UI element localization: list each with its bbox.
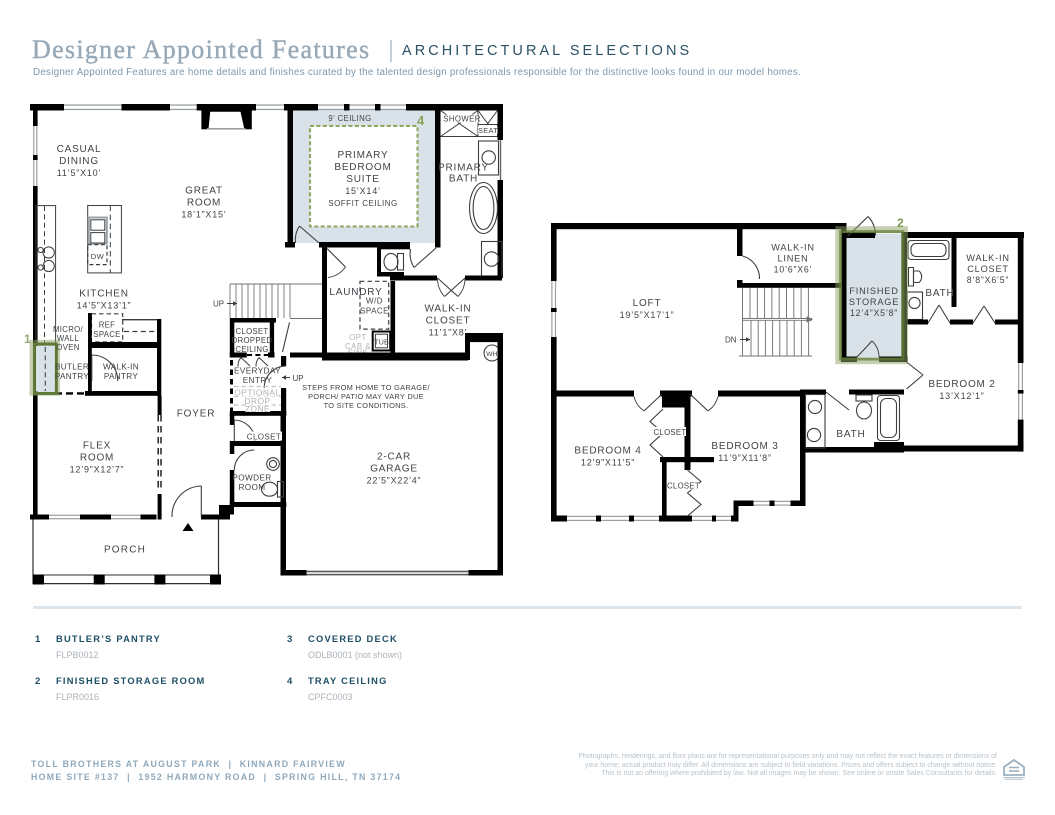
svg-text:ENTRY: ENTRY — [243, 376, 273, 385]
svg-text:2: 2 — [897, 216, 904, 230]
svg-text:11’5”X10’: 11’5”X10’ — [57, 168, 102, 178]
svg-text:FINISHED: FINISHED — [849, 286, 898, 296]
svg-text:OVEN: OVEN — [56, 343, 79, 352]
svg-text:STEPS FROM HOME TO GARAGE/: STEPS FROM HOME TO GARAGE/ — [302, 383, 430, 392]
svg-text:CASUAL: CASUAL — [57, 144, 102, 155]
svg-text:DN: DN — [725, 336, 737, 345]
svg-text:DINING: DINING — [59, 156, 99, 167]
svg-text:SHOWER: SHOWER — [443, 115, 481, 124]
svg-text:15’X14’: 15’X14’ — [345, 186, 381, 196]
svg-text:PORCH/ PATIO MAY VARY DUE: PORCH/ PATIO MAY VARY DUE — [308, 392, 424, 401]
svg-text:CLOSET: CLOSET — [236, 327, 269, 336]
svg-text:10’6”X6’: 10’6”X6’ — [774, 265, 813, 275]
svg-text:TUB: TUB — [374, 338, 389, 347]
svg-text:LINEN: LINEN — [777, 254, 808, 264]
svg-text:BEDROOM 3: BEDROOM 3 — [711, 441, 778, 452]
svg-text:WALK-IN: WALK-IN — [103, 363, 139, 372]
svg-text:CLOSET: CLOSET — [654, 428, 687, 437]
svg-text:BEDROOM 2: BEDROOM 2 — [928, 379, 995, 390]
svg-text:GREAT: GREAT — [185, 186, 223, 197]
svg-text:ROOM: ROOM — [80, 453, 114, 464]
svg-text:WALK-IN: WALK-IN — [425, 304, 472, 315]
svg-text:TO SITE CONDITIONS.: TO SITE CONDITIONS. — [324, 401, 409, 410]
svg-text:14’5”X13’1”: 14’5”X13’1” — [77, 301, 132, 311]
svg-text:12’9”X12’7”: 12’9”X12’7” — [70, 465, 125, 475]
svg-text:4: 4 — [417, 113, 425, 128]
svg-text:11’9”X11’8”: 11’9”X11’8” — [718, 453, 772, 463]
svg-text:SPACE: SPACE — [93, 330, 120, 339]
svg-text:MICRO/: MICRO/ — [53, 325, 83, 334]
svg-text:FLEX: FLEX — [83, 441, 111, 452]
svg-text:SEAT: SEAT — [478, 126, 498, 135]
svg-text:EVERYDAY: EVERYDAY — [234, 367, 281, 376]
svg-text:22’5”X22’4”: 22’5”X22’4” — [367, 476, 422, 486]
svg-text:CLOSET: CLOSET — [247, 433, 281, 442]
svg-text:11’1”X8’: 11’1”X8’ — [429, 328, 468, 338]
svg-text:BUTLER: BUTLER — [55, 363, 89, 372]
svg-text:BATH: BATH — [925, 288, 954, 299]
svg-text:KITCHEN: KITCHEN — [79, 289, 129, 300]
svg-text:UP: UP — [293, 374, 304, 383]
svg-text:GARAGE: GARAGE — [370, 464, 418, 475]
svg-text:LAUNDRY: LAUNDRY — [329, 287, 382, 298]
svg-text:19’5”X17’1”: 19’5”X17’1” — [620, 310, 675, 320]
svg-text:STORAGE: STORAGE — [849, 297, 899, 307]
svg-text:PANTRY: PANTRY — [104, 372, 138, 381]
svg-text:BEDROOM: BEDROOM — [334, 162, 391, 173]
svg-text:SPACE: SPACE — [360, 307, 389, 316]
svg-text:PRIMARY: PRIMARY — [338, 150, 389, 161]
svg-text:CLOSET: CLOSET — [667, 481, 700, 490]
svg-text:OPT: OPT — [349, 333, 367, 342]
svg-text:2-CAR: 2-CAR — [377, 452, 411, 463]
svg-text:PRIMARY: PRIMARY — [438, 163, 489, 174]
svg-text:FOYER: FOYER — [177, 409, 215, 420]
svg-text:ROOM: ROOM — [187, 198, 221, 209]
svg-text:DW: DW — [91, 252, 105, 261]
svg-text:LOFT: LOFT — [633, 298, 662, 309]
svg-text:18’1”X15’: 18’1”X15’ — [181, 210, 226, 220]
svg-text:CLOSET: CLOSET — [426, 316, 471, 327]
svg-text:CLOSET: CLOSET — [967, 264, 1009, 274]
svg-text:SUITE: SUITE — [346, 174, 379, 185]
svg-text:PORCH: PORCH — [104, 545, 146, 556]
svg-text:WALL: WALL — [57, 334, 80, 343]
svg-text:SOFFIT CEILING: SOFFIT CEILING — [328, 199, 398, 208]
svg-text:REF: REF — [99, 321, 116, 330]
svg-text:12’4”X5’8”: 12’4”X5’8” — [850, 308, 898, 318]
svg-text:1: 1 — [24, 332, 31, 346]
svg-text:12’9”X11’5”: 12’9”X11’5” — [581, 458, 635, 468]
svg-text:BATH: BATH — [449, 174, 478, 185]
svg-text:WH: WH — [486, 351, 497, 358]
svg-text:POWDER: POWDER — [232, 474, 271, 483]
svg-text:WALK-IN: WALK-IN — [966, 253, 1010, 263]
svg-text:ZONE: ZONE — [245, 404, 270, 414]
svg-text:9’ CEILING: 9’ CEILING — [328, 114, 371, 123]
svg-text:PANTRY: PANTRY — [55, 372, 89, 381]
svg-text:DROPPED: DROPPED — [232, 336, 273, 345]
svg-text:WALK-IN: WALK-IN — [771, 243, 815, 253]
svg-text:13’X12’1”: 13’X12’1” — [939, 391, 984, 401]
svg-text:BATH: BATH — [836, 429, 865, 440]
svg-text:8’8”X6’5”: 8’8”X6’5” — [967, 275, 1009, 285]
svg-text:BEDROOM 4: BEDROOM 4 — [574, 446, 641, 457]
svg-text:UP: UP — [213, 300, 224, 309]
